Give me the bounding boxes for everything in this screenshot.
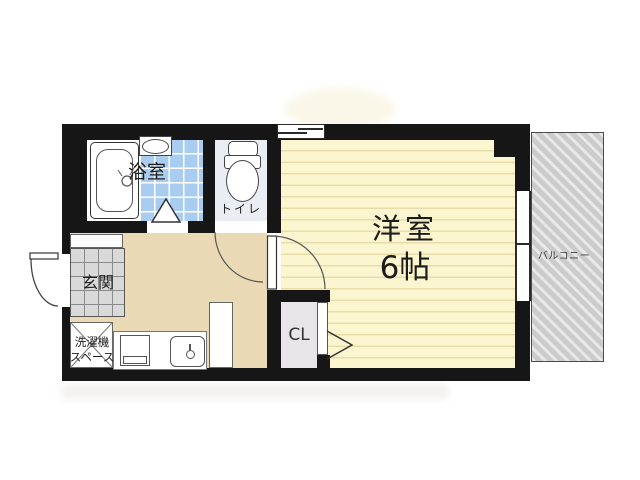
closet-label: CL	[281, 325, 317, 345]
laundry-label-line2: スペース	[68, 349, 116, 365]
closet-folding-door-icon	[327, 331, 352, 359]
toilet-label: トイレ	[214, 200, 268, 217]
room-door-leaf	[268, 236, 277, 289]
balcony-label: バルコニー	[532, 247, 596, 262]
room-door-arc	[272, 236, 325, 289]
toilet-door-arc	[215, 232, 263, 282]
bathroom-label: 浴室	[122, 157, 172, 184]
entrance-label: 玄関	[78, 269, 118, 293]
bath-folding-door-icon	[152, 199, 180, 222]
laundry-label-line1: 洗濯機	[68, 334, 116, 350]
front-door-leaf	[30, 253, 58, 259]
door-symbols-overlay	[0, 0, 640, 480]
front-door-arc	[31, 259, 58, 306]
main-room-size-label: 6帖	[340, 242, 470, 287]
floor-plan: 浴室 トイレ 玄関 洗濯機 スペース CL 洋室 6帖 バルコニー	[0, 0, 640, 480]
